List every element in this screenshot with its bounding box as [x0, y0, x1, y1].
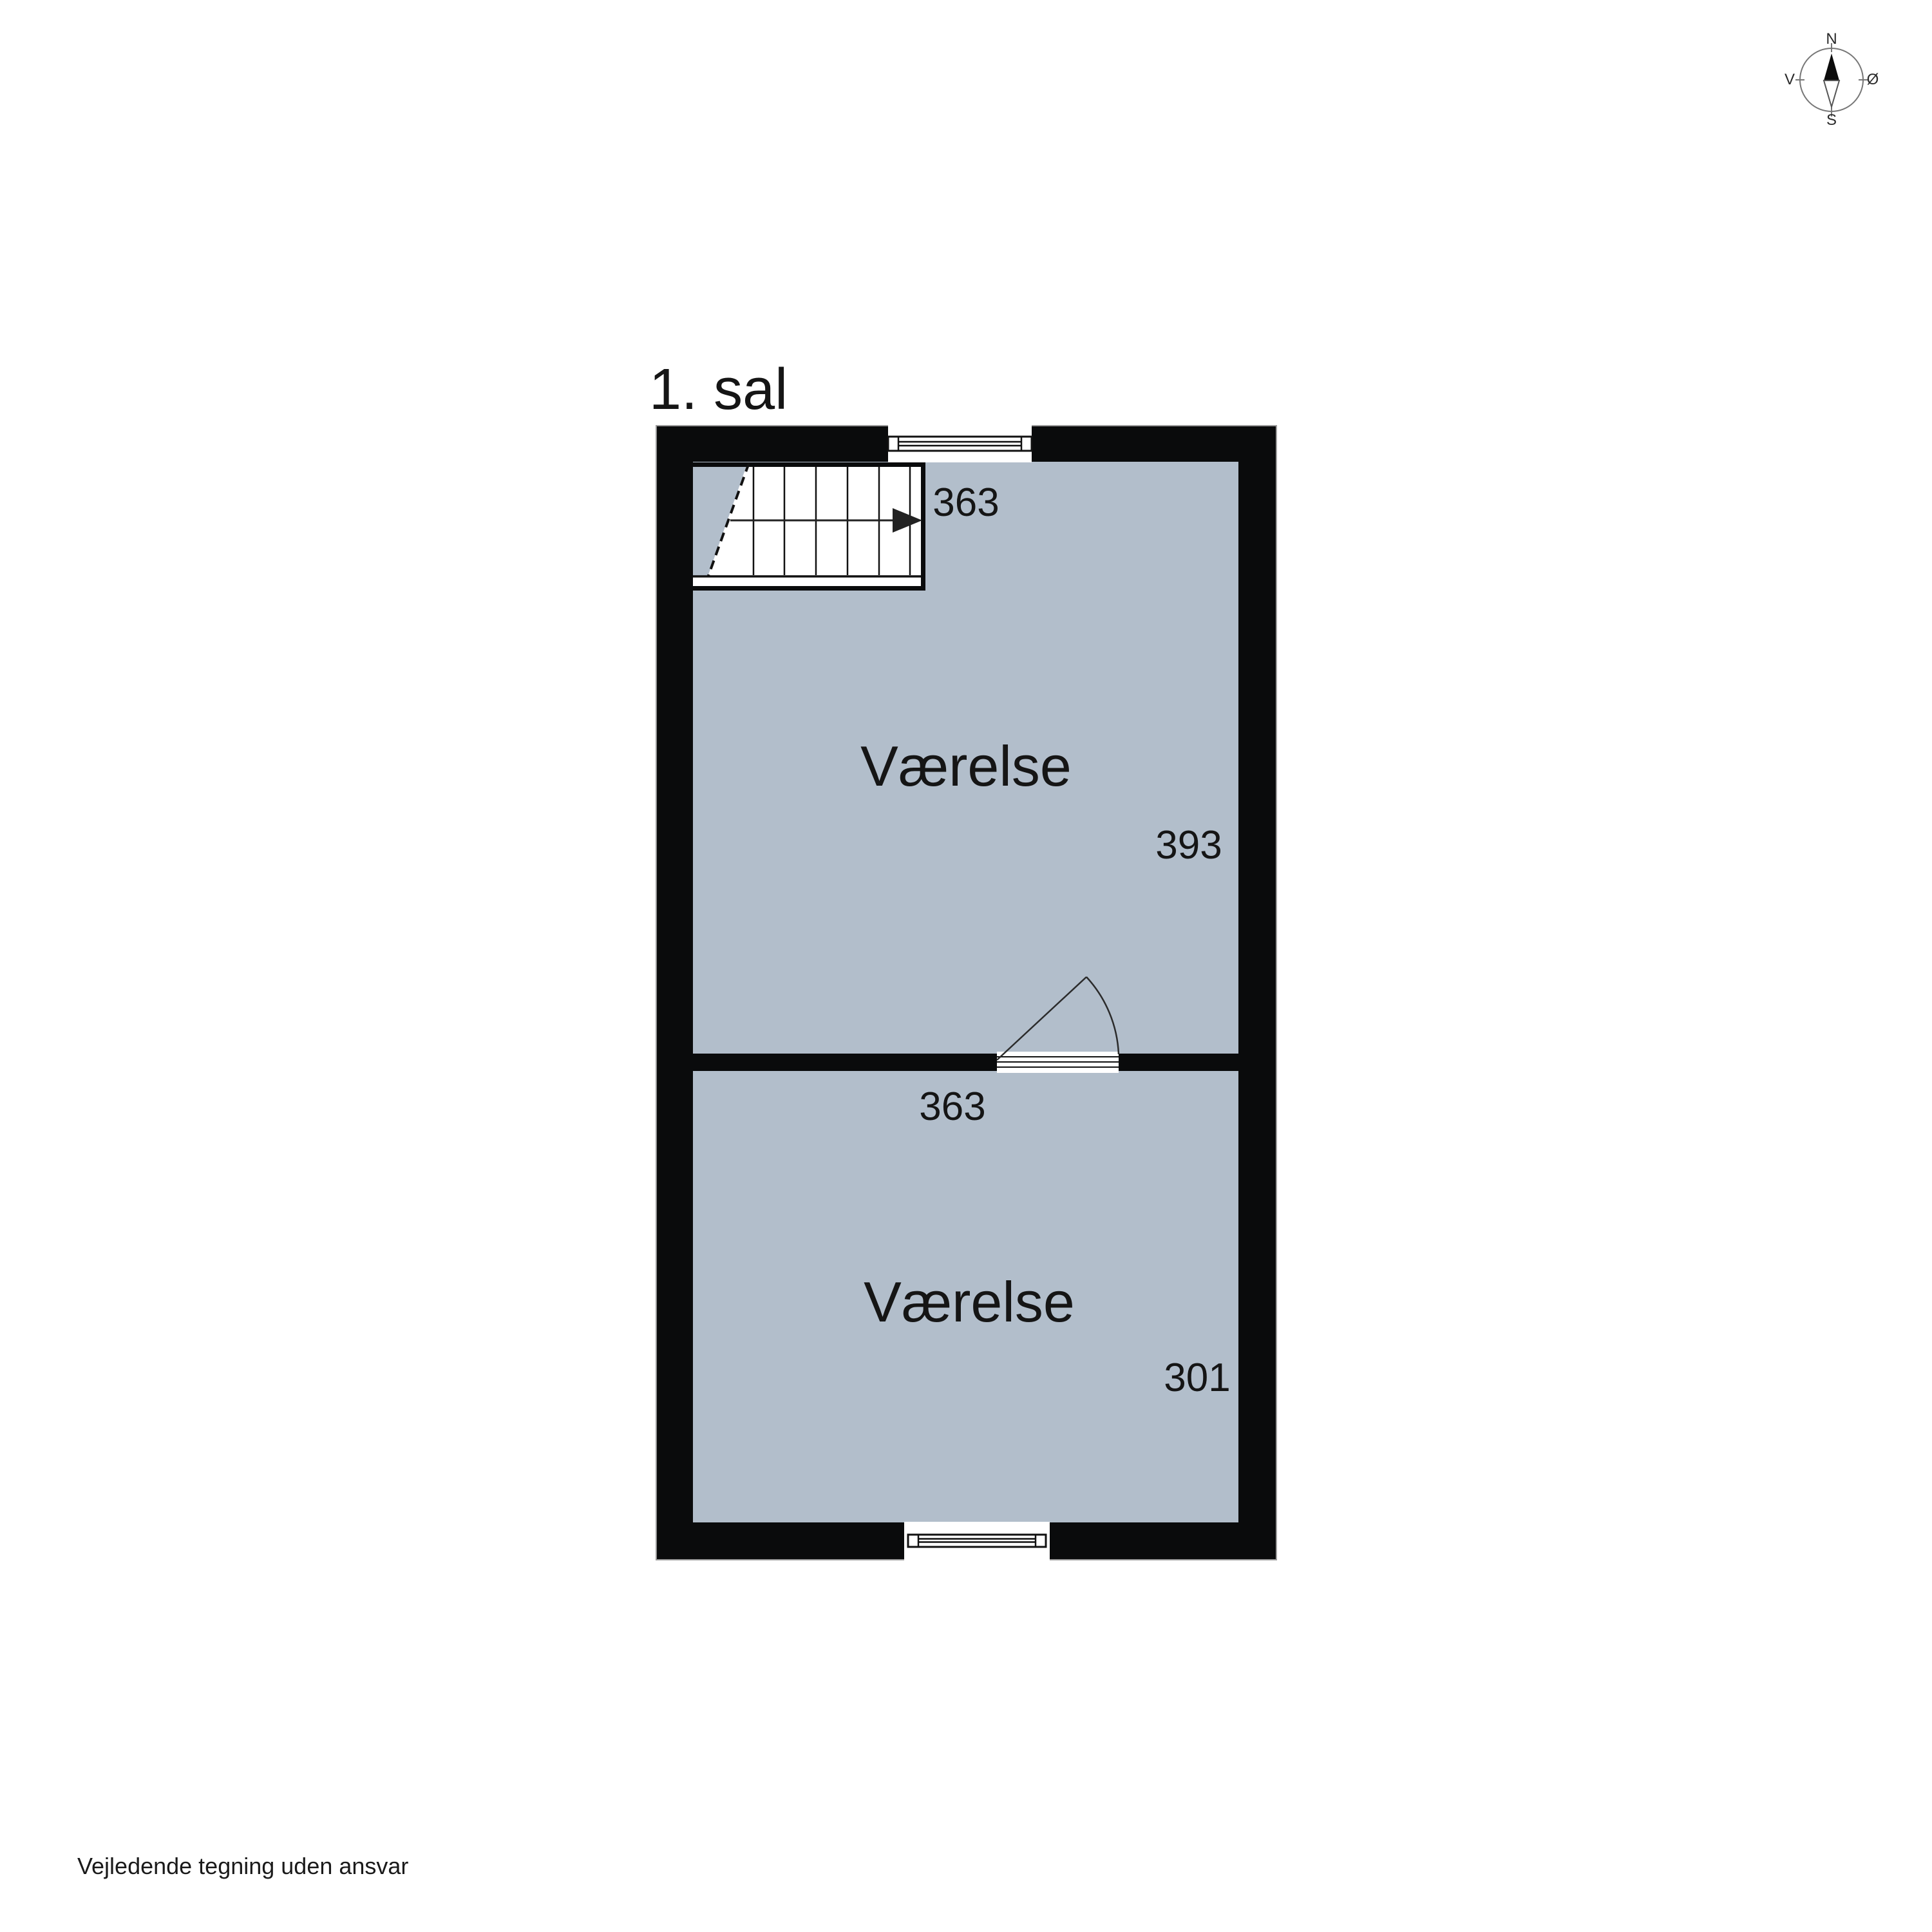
room-upper-width-dim: 363	[933, 483, 999, 523]
compass-north-label: N	[1826, 32, 1837, 47]
window-top-frame	[888, 437, 1032, 451]
room-upper-name: Værelse	[860, 738, 1072, 795]
disclaimer-text: Vejledende tegning uden ansvar	[77, 1855, 408, 1878]
window-bottom	[904, 1522, 1050, 1560]
floor-title: 1. sal	[649, 361, 788, 419]
floorplan-page: 1. sal 363 Værelse 393 363 Værelse 301 N…	[0, 0, 1932, 1932]
compass-icon	[1795, 43, 1868, 117]
compass-needle-north	[1824, 53, 1839, 80]
staircase	[693, 462, 925, 591]
compass-east-label: Ø	[1867, 72, 1879, 88]
room-upper-depth-dim: 393	[1155, 826, 1222, 866]
floorplan-drawing	[0, 0, 1932, 1932]
compass-needle-south	[1824, 80, 1839, 107]
compass-south-label: S	[1826, 113, 1837, 128]
room-lower-name: Værelse	[864, 1274, 1075, 1331]
room-lower-width-dim: 363	[919, 1087, 985, 1127]
room-lower-depth-dim: 301	[1164, 1358, 1230, 1398]
window-top	[888, 425, 1032, 462]
window-bottom-frame	[908, 1535, 1046, 1547]
compass-west-label: V	[1785, 72, 1795, 88]
